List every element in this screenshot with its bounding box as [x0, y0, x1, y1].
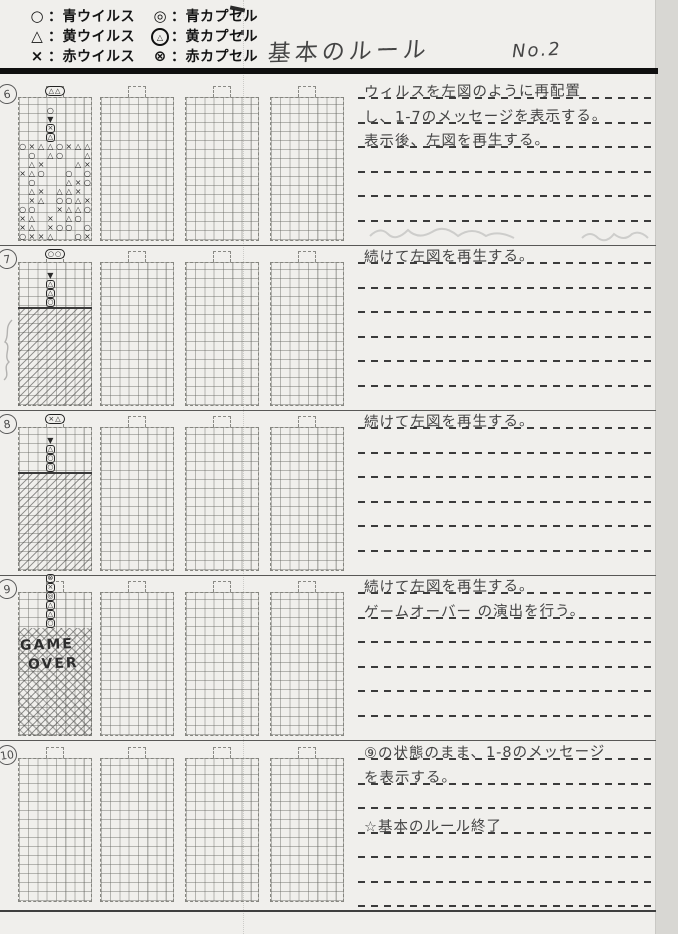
- note-text: ☆基本のルール終了: [364, 814, 502, 836]
- virus-symbol: ×: [37, 160, 46, 169]
- virus-symbol: ×: [18, 169, 27, 178]
- bottle-grid-panel: [185, 416, 259, 571]
- circled-O-symbol-icon: ◎: [149, 7, 171, 25]
- note-rule-line: [358, 311, 656, 313]
- page-number: No.2: [511, 39, 562, 63]
- note-rule-line: [358, 881, 656, 883]
- bottle-grid-panel: [100, 581, 174, 736]
- virus-symbol: ×: [46, 214, 55, 223]
- virus-symbol: ×: [83, 232, 92, 241]
- rule-section: 7○○▼△△○続けて左図を再生する。: [0, 251, 678, 416]
- note-rule-line: [358, 690, 656, 692]
- virus-symbol: ○: [27, 178, 36, 187]
- bottle-grid: [185, 97, 259, 241]
- overflow-stack-piece: △: [46, 601, 55, 610]
- rule-section: 10⑨の状態のまま、1-8のメッセージを表示する。☆基本のルール終了: [0, 747, 678, 912]
- bottle-grid-panel: [100, 747, 174, 902]
- bottle-grid: [100, 758, 174, 902]
- virus-symbol: △: [46, 232, 55, 241]
- virus-symbol: ○: [27, 205, 36, 214]
- virus-symbol: △: [74, 205, 83, 214]
- legend-label: ：黄ウイルス: [48, 26, 135, 46]
- bottle-neck: [128, 251, 147, 262]
- rule-section: 9⊗×◎△△○GAMEOVER続けて左図を再生する。ゲームオーバー の演出を行う…: [0, 581, 678, 746]
- A-symbol-icon: △: [26, 27, 48, 45]
- note-rule-line: [358, 807, 656, 809]
- bottle-neck: [128, 581, 147, 592]
- virus-symbol: △: [74, 160, 83, 169]
- virus-symbol: ○: [83, 178, 92, 187]
- piece-symbol: △: [46, 280, 55, 289]
- virus-symbol: ×: [64, 142, 73, 151]
- note-text: ゲームオーバー の演出を行う。: [364, 599, 585, 622]
- section-number: 7: [0, 248, 18, 271]
- virus-symbol: ×: [27, 196, 36, 205]
- virus-symbol: △: [37, 142, 46, 151]
- falling-capsule: ○○: [45, 249, 65, 259]
- note-rule-line: [358, 171, 656, 173]
- section-separator: [0, 575, 656, 576]
- bottle-grid: [185, 592, 259, 736]
- section-number: 10: [0, 744, 18, 767]
- virus-symbol: ○: [55, 223, 64, 232]
- scanned-page: ○：青ウイルス◎：青カプセル△：黄ウイルス△：黄カプセル×：赤ウイルス⊗：赤カプ…: [0, 0, 678, 934]
- note-text: 続けて左図を再生する。: [364, 244, 535, 266]
- circled-triangle-icon: △: [151, 28, 169, 46]
- virus-symbol: ○: [83, 169, 92, 178]
- virus-symbol: ○: [27, 151, 36, 160]
- bottle-neck: [298, 86, 317, 97]
- bottle-grid-panel: [185, 251, 259, 406]
- note-rule-line: [358, 501, 656, 503]
- note-rule-line: [358, 360, 656, 362]
- note-rule-line: [358, 336, 656, 338]
- legend-row: ○：青ウイルス◎：青カプセル: [26, 6, 258, 26]
- piece-symbol: ○: [46, 454, 55, 463]
- virus-symbol: ○: [18, 205, 27, 214]
- down-arrow-icon: ▼: [46, 115, 55, 124]
- virus-symbol: ○: [83, 223, 92, 232]
- note-rule-line: [358, 715, 656, 717]
- virus-symbol: △: [27, 169, 36, 178]
- virus-symbol: ○: [37, 169, 46, 178]
- virus-symbol: ×: [27, 232, 36, 241]
- circled-X-symbol-icon: ⊗: [149, 47, 171, 65]
- virus-symbol: △: [55, 187, 64, 196]
- virus-symbol: △: [37, 196, 46, 205]
- bottle-grid: [270, 592, 344, 736]
- overflow-stack-piece: ×: [46, 583, 55, 592]
- virus-symbol: ○: [55, 142, 64, 151]
- bottle-grid-panel: [270, 416, 344, 571]
- bottle-neck: [128, 416, 147, 427]
- overflow-stack-piece: ○: [46, 619, 55, 628]
- note-rule-line: [358, 525, 656, 527]
- legend-label: ：赤カプセル: [171, 46, 258, 66]
- virus-symbol: △: [64, 178, 73, 187]
- bottle-grid-panel: [270, 251, 344, 406]
- virus-symbol: ×: [83, 160, 92, 169]
- virus-symbol: △: [74, 196, 83, 205]
- virus-symbol: △: [27, 160, 36, 169]
- neck-capsule: △△: [45, 86, 65, 96]
- virus-symbol: △: [83, 142, 92, 151]
- bottle-neck: [213, 747, 232, 758]
- virus-symbol: △: [83, 151, 92, 160]
- virus-symbol: ×: [18, 223, 27, 232]
- section-separator: [0, 410, 656, 411]
- virus-symbol: △: [27, 223, 36, 232]
- virus-symbol: ×: [83, 196, 92, 205]
- bottle-grid-panel: [100, 86, 174, 241]
- bottle-grid: [270, 97, 344, 241]
- bottle-grid-panel: [185, 581, 259, 736]
- piece-symbol: ○: [46, 463, 55, 472]
- virus-symbol: ○: [55, 196, 64, 205]
- rule-section: 6△△○▼×△○×△△○×△△○△○△△×△××△○○○○△×○△×△△××△○…: [0, 86, 678, 251]
- bottle-neck: [46, 747, 65, 758]
- virus-symbol: ×: [37, 232, 46, 241]
- note-rule-line: [358, 287, 656, 289]
- overflow-stack-piece: △: [46, 610, 55, 619]
- legend-row: ×：赤ウイルス⊗：赤カプセル: [26, 46, 258, 66]
- note-text: ⑨の状態のまま、1-8のメッセージ: [364, 740, 605, 763]
- bottle-grid: [100, 592, 174, 736]
- note-rule-line: [358, 476, 656, 478]
- piece-symbol: △: [46, 445, 55, 454]
- O-symbol-icon: ○: [26, 7, 48, 25]
- falling-capsule: ×△: [45, 414, 65, 424]
- bottle-grid-panel: ○○▼△△○: [18, 251, 92, 406]
- bottle-grid-panel: [18, 747, 92, 902]
- header-rule: [0, 68, 658, 74]
- symbol-legend: ○：青ウイルス◎：青カプセル△：黄ウイルス△：黄カプセル×：赤ウイルス⊗：赤カプ…: [26, 6, 258, 66]
- bottle-neck: [213, 86, 232, 97]
- bottle-grid-panel: △△○▼×△○×△△○×△△○△○△△×△××△○○○○△×○△×△△××△○○…: [18, 86, 92, 241]
- section-number: 8: [0, 413, 18, 436]
- bottle-neck: [128, 86, 147, 97]
- bottle-grid-panel: [185, 747, 259, 902]
- note-rule-line: [358, 385, 656, 387]
- legend-label: ：赤ウイルス: [48, 46, 135, 66]
- virus-symbol: ×: [74, 178, 83, 187]
- virus-symbol: ×: [74, 187, 83, 196]
- virus-symbol: ×: [37, 187, 46, 196]
- page-title: 基本のルール: [267, 30, 432, 68]
- note-rule-line: [358, 195, 656, 197]
- bottle-grid: [18, 758, 92, 902]
- bottle-grid-panel: [100, 251, 174, 406]
- virus-symbol: ×: [27, 142, 36, 151]
- bottle-grid-panel: [100, 416, 174, 571]
- note-text: し、1-7のメッセージを表示する。: [364, 104, 608, 127]
- virus-symbol: ○: [83, 205, 92, 214]
- virus-symbol: △: [74, 142, 83, 151]
- note-text: ウィルスを左図のように再配置: [364, 79, 581, 102]
- piece-symbol: ○: [46, 298, 55, 307]
- note-rule-line: [358, 856, 656, 858]
- note-rule-line: [358, 550, 656, 552]
- bottle-neck: [298, 251, 317, 262]
- virus-symbol: ○: [64, 196, 73, 205]
- bottle-grid: [100, 427, 174, 571]
- bottle-grid-panel: [270, 86, 344, 241]
- bottle-grid: [185, 262, 259, 406]
- note-text: 続けて左図を再生する。: [364, 574, 535, 596]
- bottle-grid-panel: ⊗×◎△△○GAMEOVER: [18, 581, 92, 736]
- note-rule-line: [358, 641, 656, 643]
- bottle-grid: [100, 97, 174, 241]
- note-rule-line: [358, 452, 656, 454]
- virus-symbol: ×: [55, 205, 64, 214]
- piece-symbol: ○: [46, 106, 55, 115]
- virus-symbol: ×: [46, 223, 55, 232]
- down-arrow-icon: ▼: [46, 436, 55, 445]
- virus-symbol: △: [46, 142, 55, 151]
- bleedthrough-scribble-2: [580, 228, 650, 244]
- page-bottom-rule: [0, 910, 656, 912]
- bottle-grid: [185, 427, 259, 571]
- virus-symbol: ○: [74, 232, 83, 241]
- note-text: 続けて左図を再生する。: [364, 409, 535, 431]
- bottle-neck: [298, 416, 317, 427]
- filled-hatch-area: [18, 472, 92, 571]
- circled-A-symbol-icon: △: [149, 26, 171, 47]
- legend-label: ：青ウイルス: [48, 6, 135, 26]
- virus-symbol: △: [27, 187, 36, 196]
- virus-symbol: ○: [18, 142, 27, 151]
- bottle-grid: [270, 427, 344, 571]
- section-separator: [0, 245, 656, 246]
- bottle-neck: [213, 251, 232, 262]
- bottle-grid: [270, 262, 344, 406]
- rule-section: 8×△▼△○○続けて左図を再生する。: [0, 416, 678, 581]
- virus-symbol: ○: [64, 169, 73, 178]
- bottle-grid: [185, 758, 259, 902]
- virus-symbol: △: [27, 214, 36, 223]
- virus-symbol: ○: [55, 151, 64, 160]
- bottle-grid-panel: ×△▼△○○: [18, 416, 92, 571]
- note-rule-line: [358, 666, 656, 668]
- note-rule-line: [358, 905, 656, 907]
- virus-symbol: ○: [64, 223, 73, 232]
- game-over-text: GAME: [20, 636, 74, 654]
- bottle-neck: [213, 416, 232, 427]
- virus-symbol: △: [64, 187, 73, 196]
- bottle-grid: [100, 262, 174, 406]
- bottle-neck: [298, 581, 317, 592]
- note-text: 表示後、左図を再生する。: [364, 128, 550, 150]
- virus-symbol: △: [64, 205, 73, 214]
- down-arrow-icon: ▼: [46, 271, 55, 280]
- overflow-stack-piece: ◎: [46, 592, 55, 601]
- bottle-neck: [213, 581, 232, 592]
- overflow-stack-piece: ⊗: [46, 574, 55, 583]
- piece-symbol: △: [46, 133, 55, 142]
- virus-symbol: △: [64, 214, 73, 223]
- virus-symbol: △: [46, 151, 55, 160]
- bottle-grid-panel: [185, 86, 259, 241]
- legend-label: ：黄カプセル: [171, 26, 258, 46]
- bleedthrough-scribble-1: [368, 222, 518, 244]
- bottle-neck: [298, 747, 317, 758]
- note-text: を表示する。: [364, 765, 457, 787]
- section-number: 6: [0, 83, 18, 106]
- section-number: 9: [0, 578, 18, 601]
- legend-row: △：黄ウイルス△：黄カプセル: [26, 26, 258, 46]
- virus-symbol: ○: [74, 214, 83, 223]
- bottle-grid: [270, 758, 344, 902]
- bottle-grid-panel: [270, 747, 344, 902]
- legend-label: ：青カプセル: [171, 6, 258, 26]
- margin-scribble: [0, 318, 16, 382]
- piece-symbol: ×: [46, 124, 55, 133]
- game-over-text: OVER: [28, 655, 79, 673]
- X-symbol-icon: ×: [26, 47, 48, 65]
- filled-hatch-area: [18, 307, 92, 406]
- piece-symbol: △: [46, 289, 55, 298]
- bottle-grid-panel: [270, 581, 344, 736]
- virus-symbol: ○: [18, 232, 27, 241]
- virus-symbol: ×: [18, 214, 27, 223]
- bottle-neck: [128, 747, 147, 758]
